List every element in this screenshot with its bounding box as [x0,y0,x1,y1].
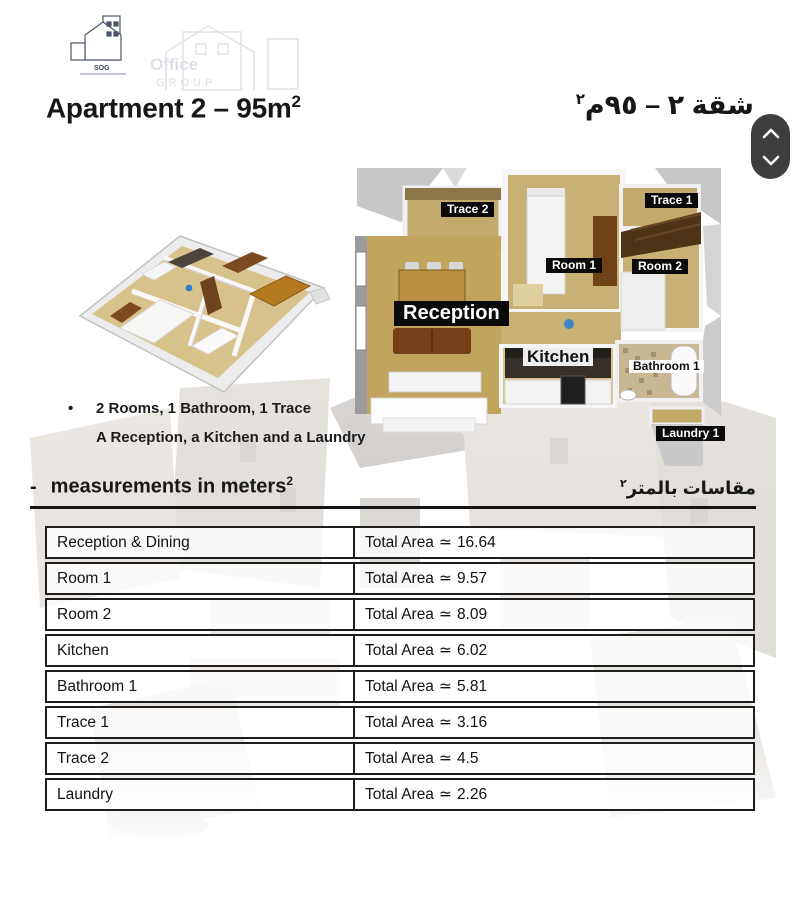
logo-watermark-text-1: Office [150,55,198,74]
area-value: 16.64 [457,534,496,552]
table-row: Laundry Total Area≃2.26 [45,778,755,811]
area-label: Total Area [365,642,434,660]
area-value: 2.26 [457,786,487,804]
table-row: Reception & Dining Total Area≃16.64 [45,526,755,559]
chevron-down-icon[interactable] [759,152,783,168]
area-cell: Total Area≃8.09 [353,600,753,629]
measurements-header: -measurements in meters2 مقاسات بالمتر٢ [30,474,756,509]
room-name-cell: Room 1 [47,570,353,588]
page-title-en: Apartment 2 – 95m2 [46,92,301,124]
room-name-cell: Room 2 [47,606,353,624]
table-row: Room 2 Total Area≃8.09 [45,598,755,631]
approx-symbol: ≃ [439,713,452,732]
company-logo: Office GROUP SOG [58,4,313,94]
area-cell: Total Area≃5.81 [353,672,753,701]
area-label: Total Area [365,714,434,732]
room-name-cell: Trace 2 [47,750,353,768]
iso-floorplan-3d [72,196,337,404]
area-label: Total Area [365,606,434,624]
approx-symbol: ≃ [439,641,452,660]
dash-marker: - [30,476,37,498]
area-value: 6.02 [457,642,487,660]
area-label: Total Area [365,750,434,768]
approx-symbol: ≃ [439,569,452,588]
chevron-up-icon[interactable] [759,125,783,141]
area-cell: Total Area≃9.57 [353,564,753,593]
area-label: Total Area [365,570,434,588]
table-row: Bathroom 1 Total Area≃5.81 [45,670,755,703]
room-name-cell: Trace 1 [47,714,353,732]
approx-symbol: ≃ [439,605,452,624]
area-cell: Total Area≃16.64 [353,528,753,557]
plan-label-trace1: Trace 1 [645,193,698,208]
approx-symbol: ≃ [439,677,452,696]
table-row: Trace 1 Total Area≃3.16 [45,706,755,739]
logo-buildings-icon [71,16,121,60]
measurements-title-en-sup: 2 [286,474,293,488]
table-row: Kitchen Total Area≃6.02 [45,634,755,667]
room-name-cell: Reception & Dining [47,534,353,552]
area-cell: Total Area≃4.5 [353,744,753,773]
plan-label-reception: Reception [394,301,509,326]
table-row: Room 1 Total Area≃9.57 [45,562,755,595]
apartment-datasheet-page: Office GROUP SOG Apartment 2 – 95m2 شقة … [0,0,806,900]
area-value: 9.57 [457,570,487,588]
area-label: Total Area [365,786,434,804]
bullet-icon: • [68,400,96,417]
measurements-table: Reception & Dining Total Area≃16.64 Room… [45,526,755,811]
area-value: 8.09 [457,606,487,624]
room-name-cell: Bathroom 1 [47,678,353,696]
plan-label-room1: Room 1 [546,258,602,273]
logo-abbr: SOG [94,65,110,72]
area-value: 4.5 [457,750,479,768]
area-label: Total Area [365,678,434,696]
table-row: Trace 2 Total Area≃4.5 [45,742,755,775]
plan-label-bathroom1: Bathroom 1 [629,360,704,373]
approx-symbol: ≃ [439,533,452,552]
room-name-cell: Kitchen [47,642,353,660]
features-list: • 2 Rooms, 1 Bathroom, 1 Trace A Recepti… [68,400,366,446]
page-title-ar: شقة ٢ – ٩٥م٢ [576,90,754,121]
area-cell: Total Area≃3.16 [353,708,753,737]
scroll-pill [751,114,790,179]
logo-tagline-line [80,73,126,75]
page-title-en-text: Apartment 2 – 95m [46,92,291,123]
measurements-title-ar-text: مقاسات بالمتر [627,478,756,498]
measurements-title-ar: مقاسات بالمتر٢ [620,477,756,499]
approx-symbol: ≃ [439,749,452,768]
plan-label-trace2: Trace 2 [441,202,494,217]
area-cell: Total Area≃2.26 [353,780,753,809]
measurements-title-en-text: measurements in meters [51,476,287,498]
measurements-title-en: -measurements in meters2 [30,474,293,499]
page-title-ar-text: شقة ٢ – ٩٥م [585,90,754,120]
plan-label-kitchen: Kitchen [523,348,593,366]
plan-label-room2: Room 2 [632,259,688,274]
page-title-ar-sup: ٢ [576,91,585,108]
plan-label-laundry1: Laundry 1 [656,426,725,441]
approx-symbol: ≃ [439,785,452,804]
area-label: Total Area [365,534,434,552]
area-cell: Total Area≃6.02 [353,636,753,665]
area-value: 3.16 [457,714,487,732]
feature-line-1: 2 Rooms, 1 Bathroom, 1 Trace [96,400,311,417]
feature-line-2: A Reception, a Kitchen and a Laundry [96,429,366,446]
area-value: 5.81 [457,678,487,696]
page-title-en-sup: 2 [291,92,300,111]
logo-watermark-text-2: GROUP [156,77,216,89]
measurements-title-ar-sup: ٢ [620,478,627,490]
room-name-cell: Laundry [47,786,353,804]
